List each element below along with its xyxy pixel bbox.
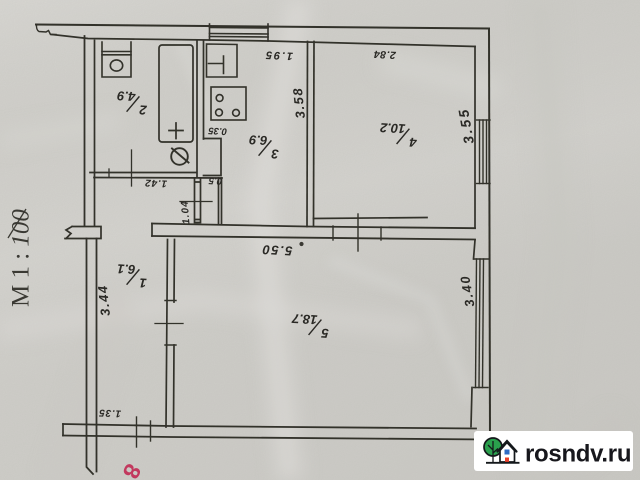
svg-text:M 1 : 100: M 1 : 100 (8, 209, 35, 307)
svg-text:6.1: 6.1 (117, 261, 136, 277)
svg-text:6.9: 6.9 (248, 132, 268, 148)
svg-text:1.04: 1.04 (179, 200, 192, 225)
svg-text:18.7: 18.7 (291, 311, 318, 327)
svg-text:1: 1 (139, 275, 147, 290)
svg-text:0.35: 0.35 (207, 125, 227, 137)
svg-text:1.35: 1.35 (98, 407, 121, 419)
svg-text:10.2: 10.2 (379, 120, 406, 136)
svg-text:2.84: 2.84 (373, 48, 397, 61)
svg-text:1.42: 1.42 (144, 177, 167, 189)
svg-text:2: 2 (138, 102, 148, 117)
svg-text:5.50: 5.50 (261, 242, 293, 259)
svg-text:4: 4 (408, 135, 418, 150)
svg-text:1.95: 1.95 (264, 48, 293, 61)
svg-text:0.5: 0.5 (208, 175, 222, 187)
svg-text:4.9: 4.9 (116, 88, 137, 104)
svg-text:rosndv.ru: rosndv.ru (525, 441, 631, 468)
